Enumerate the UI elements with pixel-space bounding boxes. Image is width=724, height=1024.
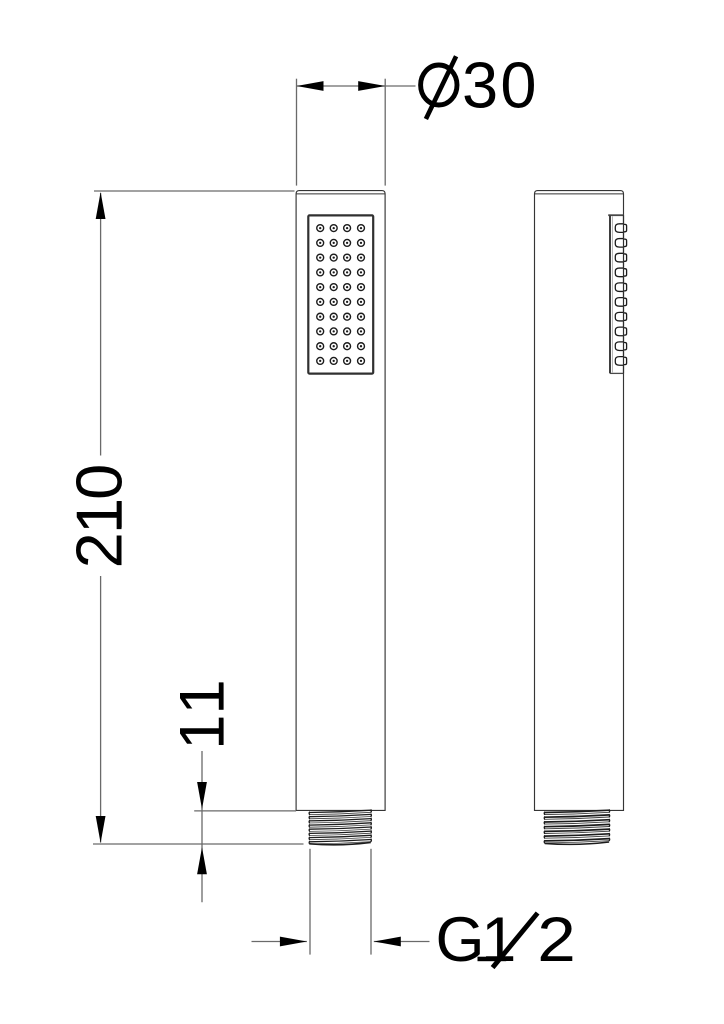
svg-text:G: G xyxy=(436,905,485,975)
svg-text:2: 2 xyxy=(537,905,576,975)
svg-text:30: 30 xyxy=(462,49,539,122)
svg-text:11: 11 xyxy=(168,679,238,750)
svg-text:210: 210 xyxy=(63,466,136,569)
svg-text:1: 1 xyxy=(481,905,516,975)
